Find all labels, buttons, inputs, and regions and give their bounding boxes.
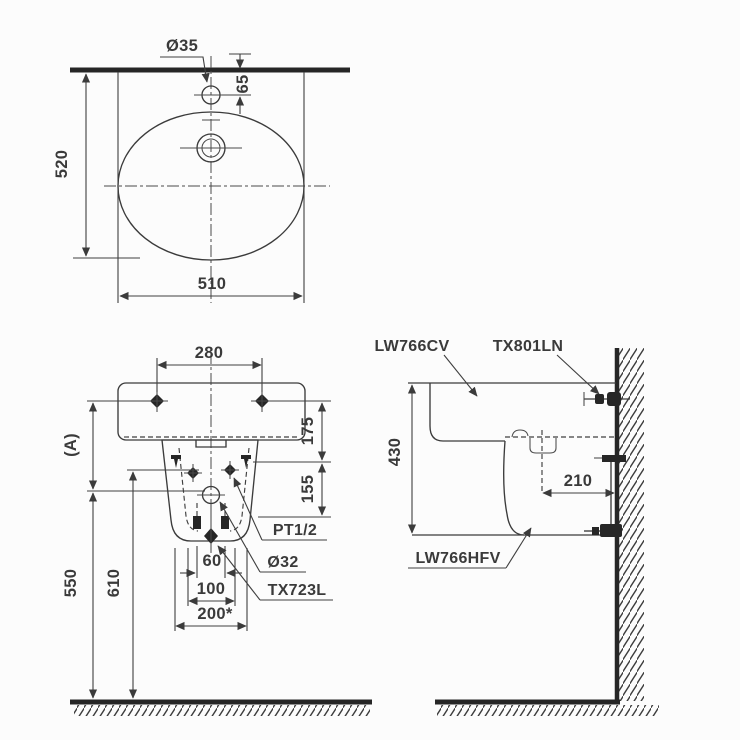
basin-side-profile: [408, 383, 616, 535]
dim-trap-height: 550: [62, 569, 80, 597]
washbasin-installation-drawing: Ø35 65 520 510: [0, 0, 740, 740]
dim-outlet-spacing: 100: [197, 580, 225, 598]
label-basin-model: LW766CV: [374, 338, 449, 355]
dim-basin-width: 510: [198, 275, 226, 293]
label-bracket-model: TX801LN: [493, 338, 564, 355]
mounting-holes: [146, 390, 273, 412]
dim-basin-depth-group: 520: [53, 74, 140, 258]
dim-faucet-hole-diameter: Ø35: [166, 37, 198, 55]
pedestal-front: [162, 440, 258, 552]
dim-supply-to-trap: 155: [299, 475, 317, 503]
dim-reference-height: (A): [62, 433, 80, 457]
dim-rim-to-supply: 175: [299, 417, 317, 445]
dim-bottom-group: 60 100 200*: [175, 546, 247, 631]
centerlines: [104, 56, 330, 303]
dim-pedestal-width: 200*: [197, 605, 232, 623]
label-pedestal-model: LW766HFV: [415, 550, 500, 567]
wall-hatching: [619, 348, 644, 701]
faucet-hole-callout: Ø35: [160, 37, 207, 82]
dim-overflow-group: 210: [543, 472, 614, 493]
label-supply-connection: PT1/2: [273, 522, 317, 539]
dim-supply-height: 610: [105, 569, 123, 597]
technical-drawing-sheet: Ø35 65 520 510: [0, 0, 740, 740]
dim-basin-depth: 520: [53, 150, 71, 178]
dim-bolt-spacing-group: 280: [157, 344, 262, 392]
label-trap-model: TX723L: [268, 582, 327, 599]
front-view: 280 175 155 (A) 550 610: [62, 344, 372, 716]
side-callouts: LW766CV TX801LN LW766HFV: [374, 338, 599, 568]
label-waste-diameter: Ø32: [267, 554, 298, 571]
dim-height-group: 430: [386, 385, 412, 533]
dim-rim-to-bracket: 430: [386, 438, 404, 466]
trap-fitting: [193, 505, 229, 552]
floor-hatching: [74, 705, 370, 716]
dim-faucet-hole-to-wall: 65: [234, 75, 252, 94]
overflow-detail: [512, 430, 556, 492]
dim-faucet-offset-group: 65: [222, 54, 252, 114]
top-view: Ø35 65 520 510: [53, 37, 350, 303]
dim-bolt-hole-spacing: 280: [195, 344, 223, 362]
dim-left-group: (A) 550 610: [62, 401, 205, 698]
dim-trap-offset: 60: [203, 552, 222, 570]
floor-hatching-side: [437, 705, 659, 716]
dim-right-group: 175 155: [253, 401, 331, 517]
dim-overflow-to-wall: 210: [564, 472, 592, 490]
side-view: 430 210 LW766CV TX801LN LW766HFV: [374, 338, 659, 716]
